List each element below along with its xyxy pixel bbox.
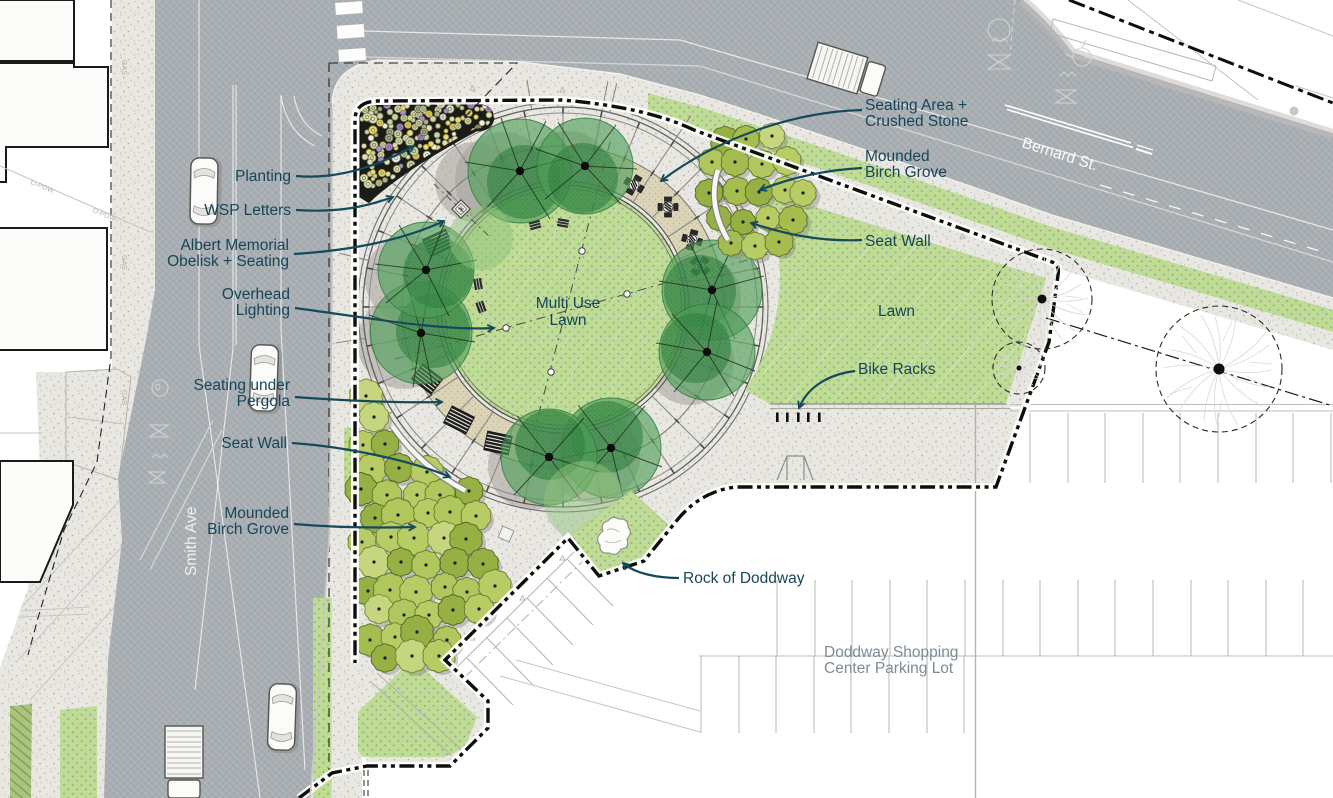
svg-text:Pergola: Pergola [237, 393, 291, 410]
svg-text:WSP Letters: WSP Letters [204, 202, 291, 219]
svg-text:Albert Memorial: Albert Memorial [180, 237, 289, 254]
svg-text:Birch Grove: Birch Grove [865, 164, 947, 181]
svg-text:Seat Wall: Seat Wall [865, 233, 931, 250]
svg-text:Smith Ave: Smith Ave [183, 506, 200, 576]
svg-text:Bike Racks: Bike Racks [858, 361, 936, 378]
svg-text:Crushed Stone: Crushed Stone [865, 113, 968, 130]
svg-text:Overhead: Overhead [222, 286, 290, 303]
svg-text:GAS: GAS [120, 525, 127, 540]
svg-text:GAS: GAS [120, 60, 127, 75]
svg-text:Lawn: Lawn [878, 303, 915, 320]
svg-text:Birch Grove: Birch Grove [207, 521, 289, 538]
svg-text:Seating Area +: Seating Area + [865, 97, 967, 114]
svg-text:GAS: GAS [120, 660, 127, 675]
svg-text:Lawn: Lawn [549, 312, 586, 329]
svg-text:GAS: GAS [120, 255, 127, 270]
svg-text:Seat Wall: Seat Wall [221, 435, 287, 452]
svg-text:Rock of Doddway: Rock of Doddway [683, 570, 805, 587]
svg-text:Obelisk + Seating: Obelisk + Seating [167, 253, 289, 270]
svg-text:Doddway Shopping: Doddway Shopping [824, 644, 958, 661]
svg-text:Mounded: Mounded [224, 505, 289, 522]
svg-text:Mounded: Mounded [865, 148, 930, 165]
svg-text:Center Parking Lot: Center Parking Lot [824, 660, 954, 677]
svg-text:Multi Use: Multi Use [536, 295, 601, 312]
svg-text:Planting: Planting [235, 168, 291, 185]
svg-text:GAS: GAS [120, 390, 127, 405]
svg-text:Lighting: Lighting [236, 302, 290, 319]
svg-text:Seating under: Seating under [193, 377, 290, 394]
